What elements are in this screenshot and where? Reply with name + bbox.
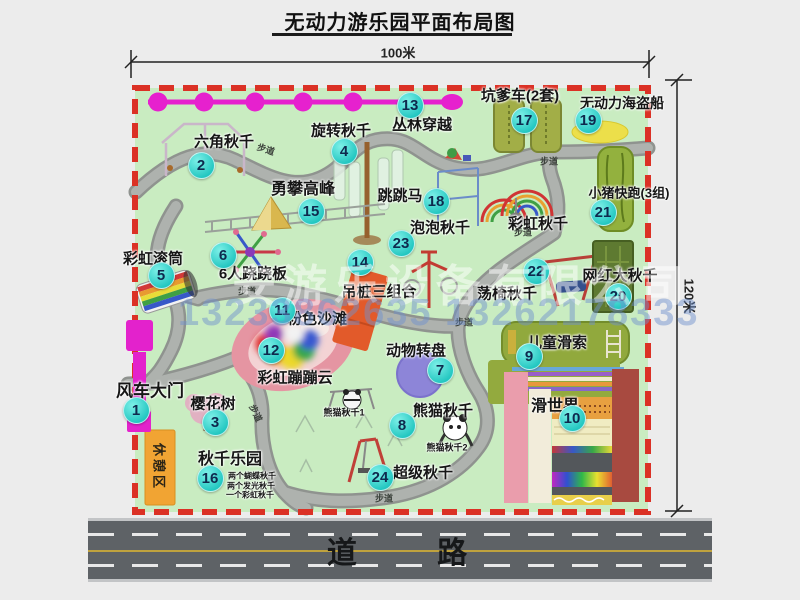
road: 道 路	[88, 518, 712, 582]
slide-world-icon	[488, 360, 639, 505]
rest-area-label: 休憩区	[151, 443, 170, 491]
park-layout-map: 无动力游乐园平面布局图 100米 120米	[0, 0, 800, 600]
watermark-phone: 13233862635 13262178333	[178, 292, 700, 335]
animal-turntable-icon	[397, 351, 443, 397]
pirate-ship-icon	[572, 121, 628, 143]
piggy-run-icon	[598, 147, 633, 231]
road-label: 道 路	[327, 528, 473, 572]
